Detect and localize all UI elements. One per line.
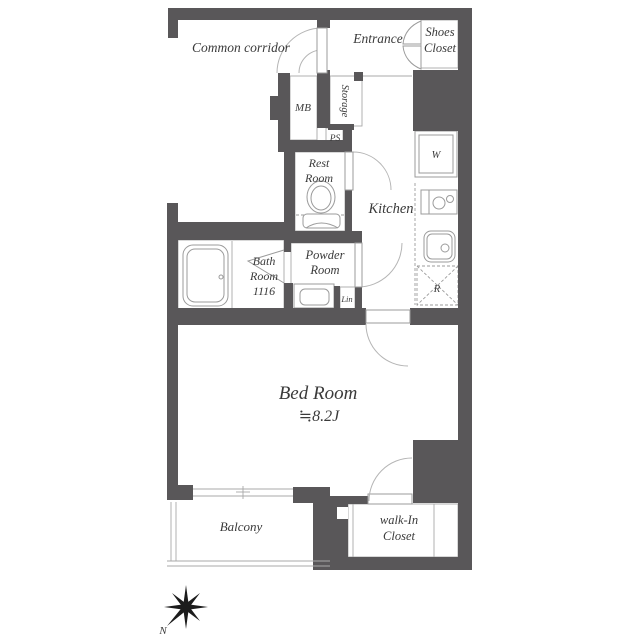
label-kitchen: Kitchen bbox=[367, 201, 413, 217]
label-bath-room: 1116 bbox=[253, 284, 275, 298]
label-entrance: Entrance bbox=[352, 31, 403, 46]
label-linen: Lin bbox=[340, 294, 352, 304]
compass: N bbox=[158, 585, 208, 637]
wall-left bbox=[167, 203, 178, 500]
wall-mb-storage-divider bbox=[317, 70, 330, 128]
wall-bath-powder-stub bbox=[284, 240, 291, 252]
floorplan-drawing: Common corridor Entrance Shoes Closet MB… bbox=[0, 0, 640, 640]
wall-mb-notch bbox=[270, 96, 278, 120]
wall-linen-left bbox=[334, 286, 340, 310]
wic-notch bbox=[337, 507, 348, 519]
wall-storage-cap bbox=[354, 72, 363, 81]
wall-restroom-right bbox=[345, 190, 352, 231]
label-common-corridor: Common corridor bbox=[192, 40, 291, 55]
label-mb: MB bbox=[294, 102, 311, 114]
compass-north-label: N bbox=[158, 625, 167, 637]
restroom-door-arc bbox=[353, 152, 391, 190]
label-walk-in-closet: walk-In bbox=[380, 513, 418, 527]
label-walk-in-closet: Closet bbox=[383, 529, 415, 543]
wall-wic-top bbox=[330, 496, 368, 504]
shoes-closet-folding-door bbox=[403, 46, 421, 69]
wall-balcony-right bbox=[313, 498, 330, 570]
label-rest-room: Room bbox=[304, 171, 333, 185]
powder-door-leaf bbox=[355, 243, 362, 287]
wall-bedroom-right-block bbox=[413, 440, 458, 503]
wall-bedroom-bottom-left bbox=[167, 485, 193, 500]
label-bath-room: Room bbox=[249, 269, 278, 283]
shoes-closet-folding-door bbox=[403, 21, 421, 44]
wall-entry-stub bbox=[317, 8, 330, 28]
wall-bedroom-top-right bbox=[410, 308, 472, 325]
restroom-door-leaf bbox=[345, 152, 353, 190]
floorplan-page: Common corridor Entrance Shoes Closet MB… bbox=[0, 0, 640, 640]
label-washer: W bbox=[432, 150, 442, 161]
wall-linen-right bbox=[355, 287, 362, 310]
label-bed-room: Bed Room bbox=[279, 383, 358, 404]
wall-mb-left bbox=[278, 73, 290, 144]
wall-bath-top bbox=[167, 222, 293, 240]
wall-top-left-stub bbox=[168, 8, 178, 38]
label-shoes-closet: Shoes bbox=[425, 25, 454, 39]
wall-bottom bbox=[330, 557, 472, 570]
label-bed-room-size: ≒8.2J bbox=[299, 408, 340, 425]
label-powder-room: Powder bbox=[305, 248, 345, 262]
wall-bedroom-top-left bbox=[167, 308, 366, 325]
label-ps: PS bbox=[329, 134, 341, 144]
wall-bath-powder-lower bbox=[284, 283, 293, 310]
label-storage: Storage bbox=[339, 85, 350, 118]
label-rest-room: Rest bbox=[308, 156, 330, 170]
bedroom-door-arc bbox=[366, 324, 408, 366]
label-refrigerator: R bbox=[433, 284, 441, 295]
entrance-door-leaf bbox=[317, 28, 327, 73]
label-shoes-closet: Closet bbox=[424, 41, 456, 55]
wall-block-below-shoes-closet bbox=[413, 70, 458, 131]
label-powder-room: Room bbox=[309, 263, 339, 277]
powder-door-arc bbox=[358, 243, 402, 287]
wall-powder-top bbox=[284, 231, 362, 243]
bedroom-door-threshold bbox=[366, 310, 410, 323]
wic-door-threshold bbox=[368, 494, 412, 504]
label-bath-room: Bath bbox=[253, 254, 276, 268]
label-balcony: Balcony bbox=[220, 519, 263, 534]
wall-right bbox=[458, 8, 472, 570]
